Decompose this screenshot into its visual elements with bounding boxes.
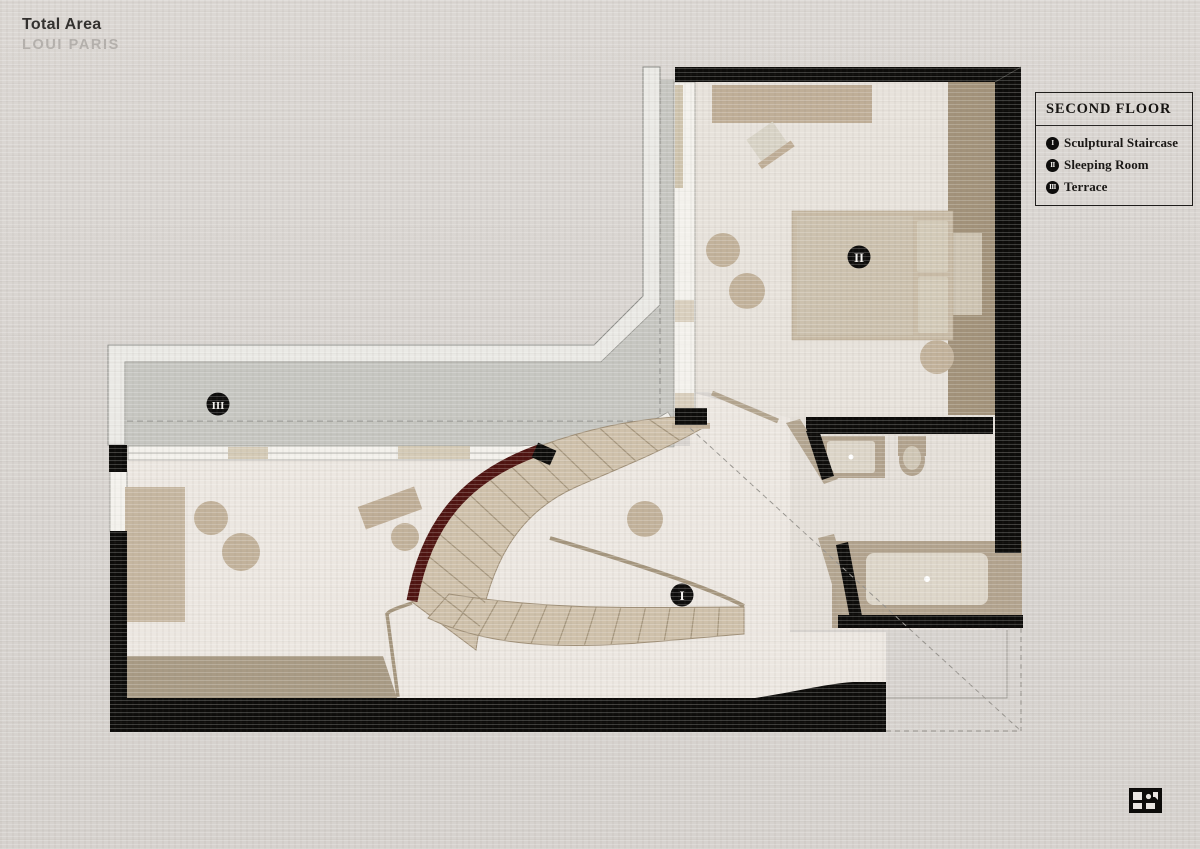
brand-logo [1129,788,1162,818]
bedroom-window-frame [675,393,694,410]
page-subtitle: LOUI PARIS [22,37,120,53]
marker-staircase: I [671,584,694,607]
bedroom-window-frame [675,300,694,322]
legend-item-terrace: III Terrace [1046,179,1184,195]
numeral-badge-icon: II [1046,159,1059,172]
bathroom-south-wall [838,615,1023,628]
numeral-badge-icon: I [1046,137,1059,150]
svg-text:I: I [679,588,684,603]
window-mullion [398,446,470,459]
newel-wall [675,408,707,425]
bed-pillow [918,277,948,333]
bedroom-console [712,85,872,123]
numeral-badge-icon: III [1046,181,1059,194]
daybed [125,487,185,622]
stool [194,501,228,535]
marker-sleeping-room: II [848,246,871,269]
legend-item-sleeping-room: II Sleeping Room [1046,157,1184,173]
stool [391,523,419,551]
left-window [110,471,127,532]
legend-box: SECOND FLOOR I Sculptural Staircase II S… [1035,92,1193,206]
bed-duvet [797,216,913,335]
void-outline-solid [886,630,1007,698]
legend-items: I Sculptural Staircase II Sleeping Room … [1036,126,1192,205]
floor-plan-drawing: I II III [0,0,1200,849]
stool [920,340,954,374]
page-title: Total Area [22,16,120,34]
brand-logo-icon [1129,788,1162,813]
terrace-pier [109,445,127,472]
stool [627,501,663,537]
svg-text:II: II [854,250,864,265]
wardrobe-bench [952,233,982,315]
stool [706,233,740,267]
bedroom-window-frame [675,85,683,188]
floor-plan-page: Total Area LOUI PARIS [0,0,1200,849]
terrace [108,67,674,447]
toilet-seat [903,446,921,470]
legend-item-staircase: I Sculptural Staircase [1046,135,1184,151]
svg-text:III: III [212,400,225,412]
stool [222,533,260,571]
marker-terrace: III [207,393,230,416]
legend-title: SECOND FLOOR [1036,93,1192,125]
terrace-deck [125,80,674,447]
bed-pillow [917,221,948,272]
sink-drain [849,455,854,460]
bathroom-north-wall [806,417,993,434]
stool [729,273,765,309]
title-block: Total Area LOUI PARIS [22,16,120,53]
window-mullion [228,447,268,459]
low-cabinet-band [125,656,397,698]
tub-drain [924,576,930,582]
